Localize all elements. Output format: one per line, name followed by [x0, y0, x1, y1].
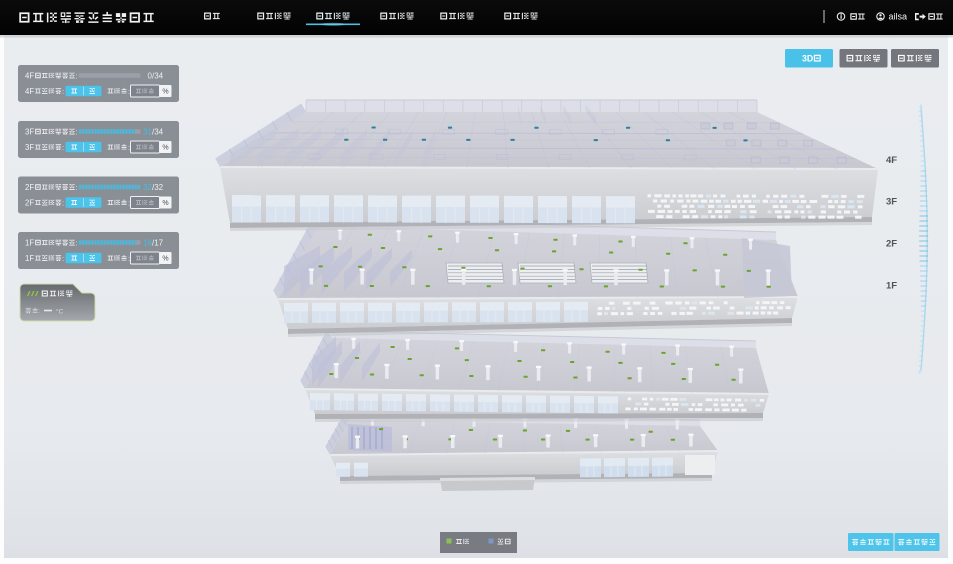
svg-text:2F: 2F — [886, 239, 897, 250]
svg-text::: : — [128, 254, 130, 263]
svg-text:ailsa: ailsa — [889, 12, 908, 22]
svg-text::: : — [76, 238, 78, 247]
svg-text::: : — [76, 127, 78, 136]
svg-text:1F: 1F — [886, 281, 897, 292]
svg-text:/34: /34 — [152, 72, 164, 81]
svg-text::: : — [76, 183, 78, 192]
svg-text::: : — [76, 71, 78, 80]
svg-text::: : — [128, 87, 130, 96]
svg-text:%: % — [162, 200, 168, 207]
svg-text:%: % — [162, 145, 168, 152]
svg-text:2F: 2F — [25, 198, 34, 207]
svg-text::: : — [128, 198, 130, 207]
svg-text:4F: 4F — [25, 87, 34, 96]
svg-text:1F: 1F — [25, 238, 34, 247]
svg-text:/32: /32 — [152, 183, 164, 192]
svg-text:4F: 4F — [886, 155, 897, 166]
svg-text:3F: 3F — [25, 143, 34, 152]
svg-text:3F: 3F — [25, 127, 34, 136]
svg-text::: : — [62, 87, 64, 96]
svg-text::: : — [62, 198, 64, 207]
svg-text:°C: °C — [56, 308, 64, 316]
svg-text:3D: 3D — [802, 53, 813, 63]
svg-text::: : — [128, 143, 130, 152]
svg-text:1F: 1F — [25, 254, 34, 263]
svg-text:%: % — [162, 256, 168, 263]
svg-text:%: % — [162, 89, 168, 96]
svg-text::: : — [62, 143, 64, 152]
svg-text:4F: 4F — [25, 71, 34, 80]
svg-text::: : — [38, 308, 40, 315]
svg-text:2F: 2F — [25, 183, 34, 192]
svg-text::: : — [62, 254, 64, 263]
svg-text:/17: /17 — [152, 239, 164, 248]
svg-text:/34: /34 — [152, 128, 164, 137]
svg-text:3F: 3F — [886, 197, 897, 208]
